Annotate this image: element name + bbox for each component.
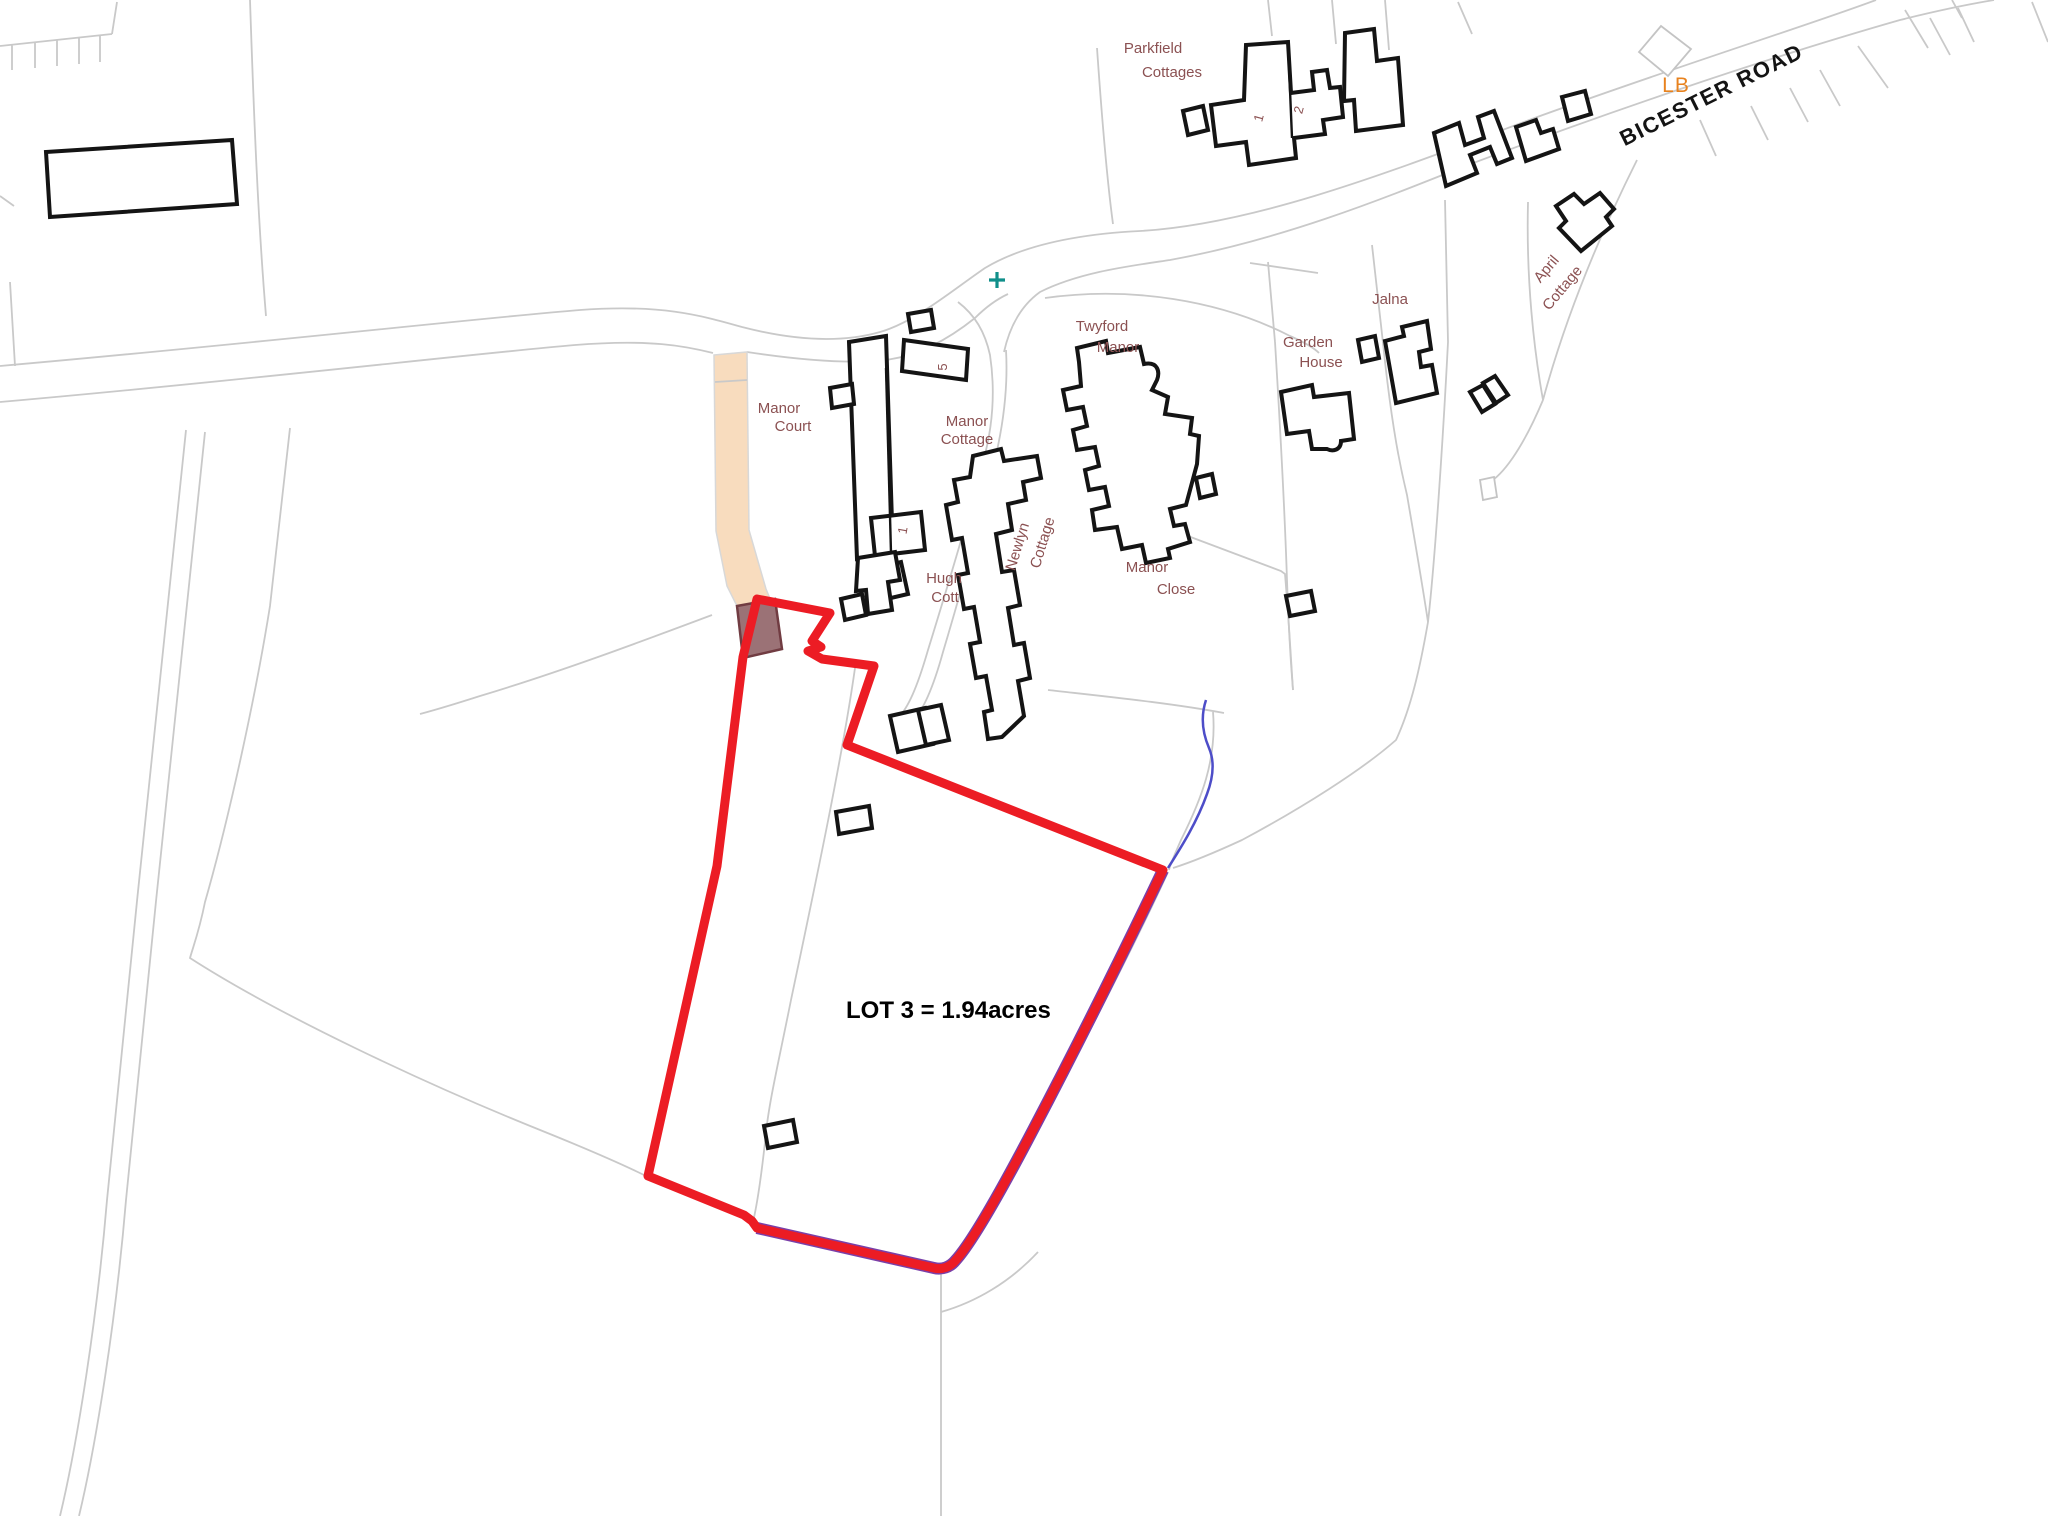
parcel-line (0, 196, 15, 366)
track-polygon (714, 352, 771, 608)
field-boundary-west (190, 428, 648, 1177)
building-parkfield-east (1344, 29, 1403, 131)
road-ticks-north (1905, 0, 2048, 48)
building-small-shed (841, 594, 866, 620)
building-in-lot-shed-2 (764, 1120, 797, 1148)
parcel-lines (0, 0, 2048, 1516)
building-outbuilding-b (918, 705, 949, 745)
site-plan-map: Parkfield Cottages Twyford Manor Manor C… (0, 0, 2048, 1516)
building-parkfield-cottages (1211, 42, 1343, 165)
building-outbuilding-close (1286, 591, 1315, 616)
building-april-cottage (1556, 193, 1614, 251)
building-roadside-h (1434, 111, 1512, 186)
gray-diamond-lb (1639, 26, 1691, 76)
label-manor-court-1: Manor (758, 400, 801, 417)
stream-under-boundary (757, 870, 1163, 1269)
benchmark-cross-icon (989, 272, 1005, 288)
building-court-north-rect (908, 310, 934, 332)
field-comb-top-left (0, 2, 117, 70)
access-track (714, 352, 771, 608)
lane-double-line (60, 430, 205, 1516)
label-parkfield-1: Parkfield (1124, 40, 1182, 57)
building-newlyn-cottage-row (946, 449, 1041, 739)
label-parkfield-2: Cottages (1142, 64, 1202, 81)
south-east-boundaries (941, 872, 1168, 1516)
label-lot3-area: LOT 3 = 1.94acres (846, 997, 1051, 1024)
building-twyford-manor (1063, 341, 1199, 563)
label-hugh-1: Hugh (926, 570, 962, 587)
building-jalna (1385, 321, 1437, 403)
label-jalna: Jalna (1372, 291, 1409, 308)
building-jalna-annex (1358, 336, 1379, 362)
label-manor-cottage-2: Cottage (941, 431, 994, 448)
building-roadside-square (1562, 91, 1591, 121)
label-manor-close-1: Manor (1126, 559, 1169, 576)
buildings (46, 26, 1691, 1148)
site-plan-svg: Parkfield Cottages Twyford Manor Manor C… (0, 0, 2048, 1516)
label-newlyn-2: Cottage (1027, 515, 1059, 570)
building-manor-court-notch (830, 384, 854, 408)
label-hugh-2: Cott (931, 589, 959, 606)
building-garden-house (1281, 385, 1354, 450)
building-barn-northwest (46, 140, 237, 217)
parcel-line (250, 0, 266, 316)
gray-plot-square (1480, 477, 1497, 500)
housenum-court-5: 5 (935, 363, 950, 370)
building-in-lot-shed-1 (836, 806, 872, 834)
field-line (420, 615, 712, 714)
label-garden-2: House (1299, 354, 1342, 371)
label-manor-court-2: Court (775, 418, 813, 435)
label-twyford-2: Manor (1097, 339, 1140, 356)
label-garden-1: Garden (1283, 334, 1333, 351)
building-manor-court-wing5 (902, 340, 968, 380)
building-roadside-l (1516, 120, 1559, 161)
lot3-boundary (648, 599, 1163, 1269)
label-twyford-1: Twyford (1076, 318, 1129, 335)
label-manor-cottage-1: Manor (946, 413, 989, 430)
building-twyford-outbuilding (1196, 474, 1216, 498)
stream-line (1168, 700, 1213, 868)
road-edge-upper (0, 0, 1876, 366)
label-manor-close-2: Close (1157, 581, 1195, 598)
building-parkfield-annex (1183, 106, 1208, 135)
